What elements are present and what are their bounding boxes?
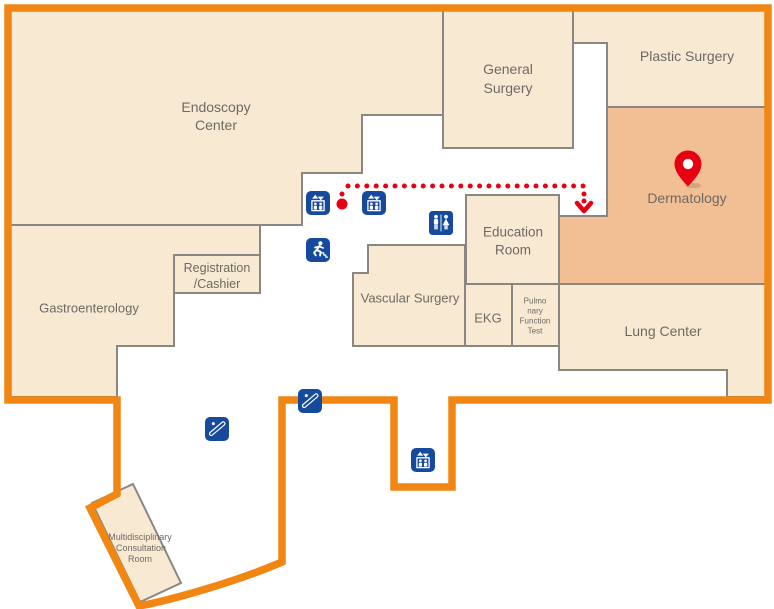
pulmonary-function-test-label: Test: [528, 327, 543, 336]
ekg-label: EKG: [474, 311, 501, 326]
emergency-exit-icon: [306, 238, 330, 262]
restroom-icon: [429, 211, 453, 235]
endoscopy-center-label: Center: [195, 117, 237, 133]
elevator-icon: [411, 448, 435, 472]
floor-map-canvas: Endoscopy Center General Surgery Plastic…: [0, 0, 774, 609]
gastroenterology-label: Gastroenterology: [39, 301, 139, 316]
registration-cashier-label: Registration: [184, 261, 251, 275]
lung-center-label: Lung Center: [624, 323, 701, 339]
endoscopy-center-label: Endoscopy: [181, 99, 250, 115]
pulmonary-function-test-label: Pulmo: [524, 297, 547, 306]
hospital-floor-map: Endoscopy Center General Surgery Plastic…: [0, 0, 774, 609]
vascular-surgery-label: Vascular Surgery: [361, 291, 460, 306]
room-lung-center[interactable]: [559, 284, 767, 397]
education-room-label: Education: [483, 225, 543, 240]
dermatology-label: Dermatology: [647, 190, 726, 206]
escalator-icon: [205, 417, 229, 441]
room-general-surgery[interactable]: [443, 8, 573, 148]
multidisciplinary-room-label: Consultation: [116, 543, 166, 553]
education-room-label: Room: [495, 243, 531, 258]
route-end-arrow: [577, 203, 591, 211]
multidisciplinary-room-label: Multidisciplinary: [108, 532, 172, 542]
elevator-icon: [362, 191, 386, 215]
room-education-room[interactable]: [466, 195, 559, 284]
plastic-surgery-label: Plastic Surgery: [640, 48, 734, 64]
escalator-icon: [298, 389, 322, 413]
registration-cashier-label: /Cashier: [194, 277, 241, 291]
general-surgery-label: General: [483, 61, 533, 77]
pulmonary-function-test-label: nary: [527, 307, 543, 316]
pulmonary-function-test-label: Function: [520, 317, 551, 326]
multidisciplinary-room-label: Room: [128, 554, 152, 564]
route-start-dot: [337, 199, 348, 210]
general-surgery-label: Surgery: [483, 80, 532, 96]
elevator-icon: [306, 191, 330, 215]
